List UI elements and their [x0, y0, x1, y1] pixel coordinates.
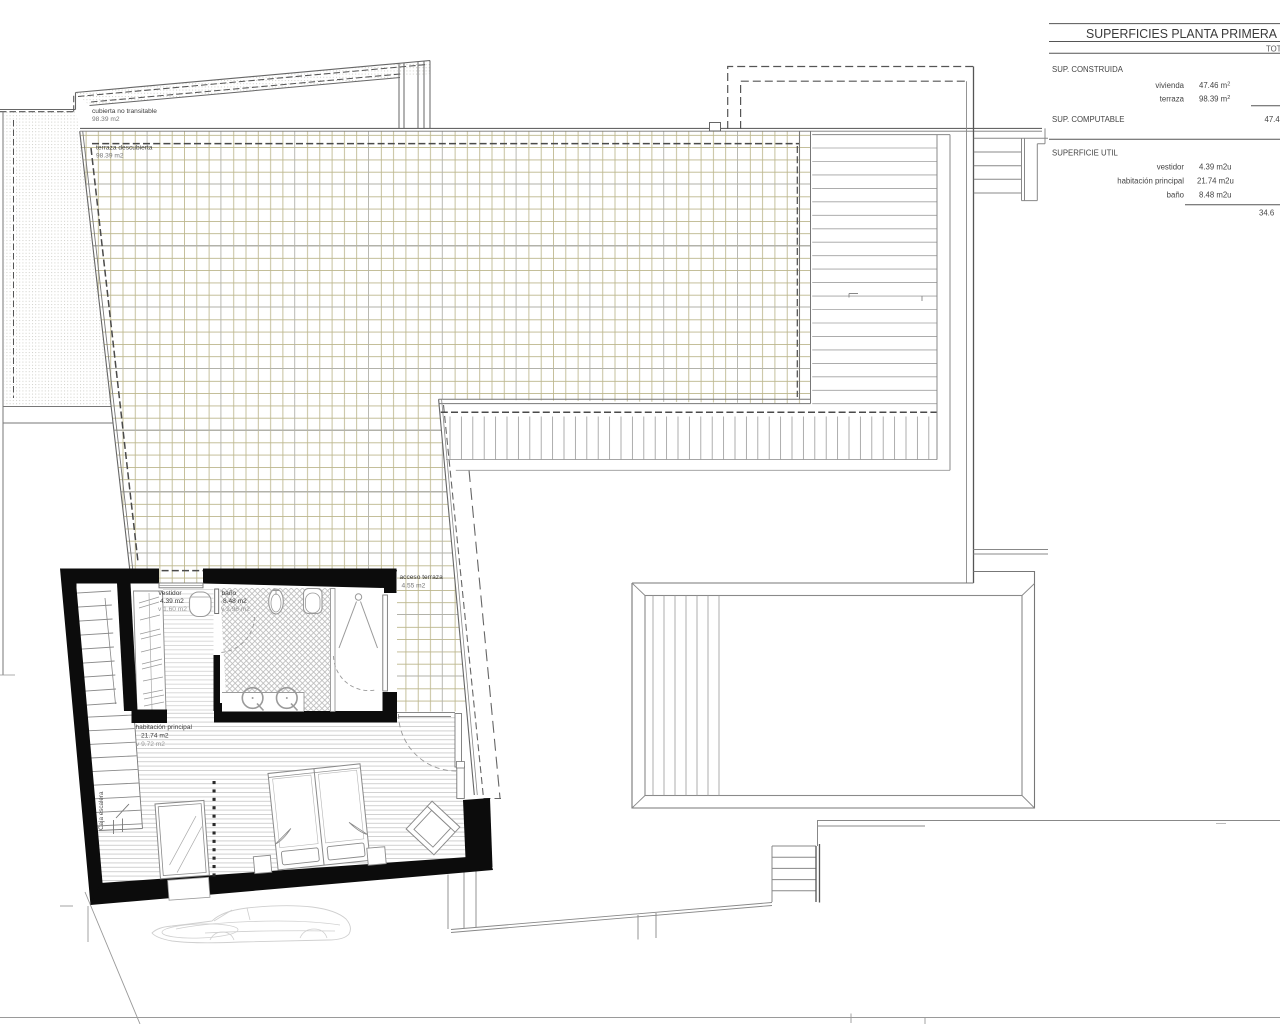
svg-text:Caja escalera: Caja escalera — [98, 791, 105, 830]
svg-text:vestidor: vestidor — [1157, 163, 1185, 172]
svg-text:habitación principal: habitación principal — [136, 724, 193, 731]
svg-text:vestidor: vestidor — [159, 590, 183, 597]
svg-text:98.39 m2: 98.39 m2 — [92, 116, 120, 123]
svg-text:terraza descubierta: terraza descubierta — [96, 145, 153, 152]
svg-text:cubierta no transitable: cubierta no transitable — [92, 108, 157, 115]
svg-text:4.55 m2: 4.55 m2 — [402, 583, 426, 590]
svg-text:TOTAL: TOTAL — [1266, 45, 1280, 54]
svg-text:8.48 m2: 8.48 m2 — [223, 598, 247, 605]
svg-text:v 9.72 m2: v 9.72 m2 — [136, 741, 165, 748]
svg-text:21.74 m2: 21.74 m2 — [141, 733, 169, 740]
svg-text:34.6: 34.6 — [1259, 208, 1274, 217]
svg-text:47.46 m2: 47.46 m2 — [1199, 81, 1230, 90]
svg-text:98.39 m2: 98.39 m2 — [96, 153, 124, 160]
svg-text:vivienda: vivienda — [1155, 81, 1184, 90]
svg-text:98.39 m2: 98.39 m2 — [1199, 94, 1230, 103]
svg-text:SUPERFICIE UTIL: SUPERFICIE UTIL — [1052, 148, 1119, 157]
svg-text:baño: baño — [222, 590, 237, 597]
svg-text:4.39 m2: 4.39 m2 — [160, 598, 184, 605]
svg-text:SUPERFICIES PLANTA PRIMERA: SUPERFICIES PLANTA PRIMERA — [1086, 26, 1277, 41]
svg-text:v 2.96 m2: v 2.96 m2 — [221, 606, 250, 613]
svg-text:baño: baño — [1167, 190, 1185, 199]
svg-text:habitación principal: habitación principal — [1117, 176, 1184, 185]
svg-text:acceso terraza: acceso terraza — [400, 574, 444, 581]
svg-text:SUP. CONSTRUIDA: SUP. CONSTRUIDA — [1052, 65, 1124, 74]
svg-text:terraza: terraza — [1160, 94, 1185, 103]
svg-text:v 1.60 m2: v 1.60 m2 — [158, 606, 187, 613]
svg-text:4.39 m2u: 4.39 m2u — [1199, 163, 1232, 172]
svg-text:8.48 m2u: 8.48 m2u — [1199, 190, 1232, 199]
svg-text:47.4: 47.4 — [1265, 115, 1280, 124]
svg-text:SUP. COMPUTABLE: SUP. COMPUTABLE — [1052, 115, 1125, 124]
svg-text:21.74 m2u: 21.74 m2u — [1197, 176, 1234, 185]
